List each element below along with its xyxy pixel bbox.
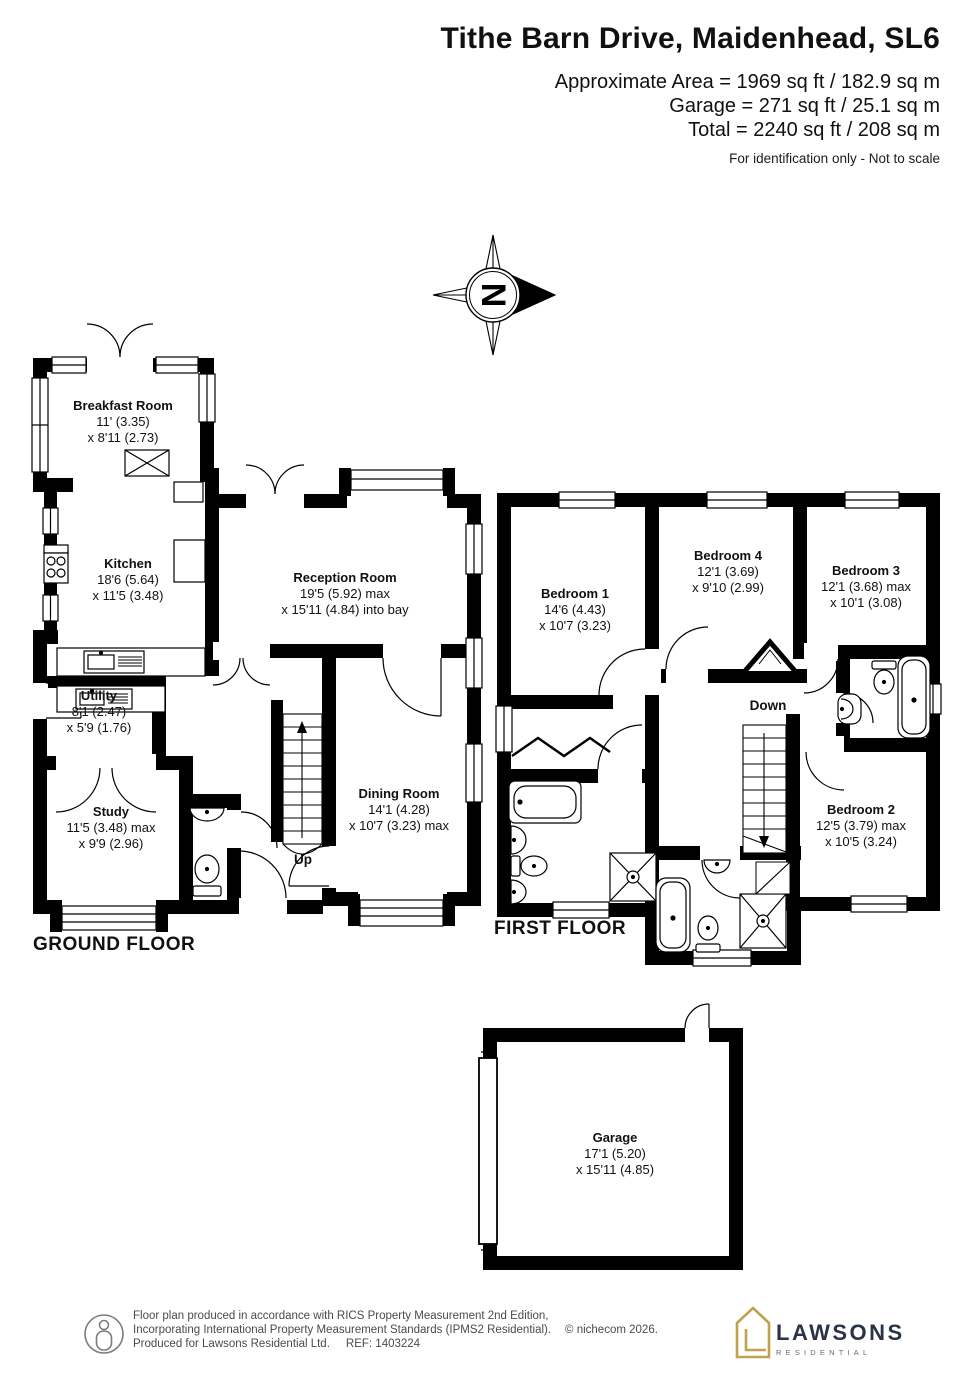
lawsons-logo: LAWSONS RESIDENTIAL xyxy=(776,1322,905,1357)
room-name: Garage xyxy=(576,1130,654,1146)
room-dim2: x 10'5 (3.24) xyxy=(816,834,906,850)
wardrobe-icon xyxy=(512,738,610,756)
room-label-kitchen: Kitchen 18'6 (5.64) x 11'5 (3.48) xyxy=(93,556,164,604)
floorplan-canvas: N xyxy=(0,0,980,1386)
room-name: Bedroom 3 xyxy=(821,563,911,579)
room-dim1: 14'1 (4.28) xyxy=(349,802,449,818)
lawsons-house-icon xyxy=(737,1308,769,1357)
family-bath-icon xyxy=(509,781,581,823)
room-dim1: 19'5 (5.92) max xyxy=(281,586,408,602)
wc-basin-icon xyxy=(190,808,224,821)
reception-bay-window xyxy=(339,468,455,496)
ensuite2-bath-icon xyxy=(656,878,690,952)
ensuite-basin-icon xyxy=(838,694,861,724)
room-name: Breakfast Room xyxy=(73,398,173,414)
room-dim2: x 9'9 (2.96) xyxy=(67,836,156,852)
room-dim2: x 15'11 (4.85) xyxy=(576,1162,654,1178)
first-floor-label: FIRST FLOOR xyxy=(494,918,626,940)
ensuite-toilet-icon xyxy=(872,661,896,694)
room-dim2: x 11'5 (3.48) xyxy=(93,588,164,604)
footer-line3: Produced for Lawsons Residential Ltd. xyxy=(133,1338,330,1350)
room-name: Bedroom 4 xyxy=(692,548,764,564)
page-title: Tithe Barn Drive, Maidenhead, SL6 xyxy=(440,22,940,56)
room-label-study: Study 11'5 (3.48) max x 9'9 (2.96) xyxy=(67,804,156,852)
room-label-bedroom-3: Bedroom 3 12'1 (3.68) max x 10'1 (3.08) xyxy=(821,563,911,611)
room-dim2: x 15'11 (4.84) into bay xyxy=(281,602,408,618)
room-dim1: 18'6 (5.64) xyxy=(93,572,164,588)
stairs-down xyxy=(743,725,786,853)
room-label-utility: Utility 8'1 (2.47) x 5'9 (1.76) xyxy=(67,688,132,736)
room-label-bedroom-4: Bedroom 4 12'1 (3.69) x 9'10 (2.99) xyxy=(692,548,764,596)
ensuite2-basin-icon xyxy=(704,860,730,873)
room-label-dining-room: Dining Room 14'1 (4.28) x 10'7 (3.23) ma… xyxy=(349,786,449,834)
wc-toilet-icon xyxy=(193,855,221,896)
roof-lantern-icon xyxy=(125,450,169,476)
footer-line2: Incorporating International Property Mea… xyxy=(133,1324,551,1336)
room-dim2: x 10'1 (3.08) xyxy=(821,595,911,611)
approximate-area: Approximate Area = 1969 sq ft / 182.9 sq… xyxy=(440,70,940,94)
footer-disclaimer: Floor plan produced in accordance with R… xyxy=(133,1309,658,1351)
room-dim2: x 9'10 (2.99) xyxy=(692,580,764,596)
compass-north-letter: N xyxy=(474,283,512,308)
family-basin2-icon xyxy=(511,880,526,904)
ensuite2-toilet-icon xyxy=(696,916,720,952)
copyright: © nichecom 2026. xyxy=(565,1324,658,1336)
room-name: Dining Room xyxy=(349,786,449,802)
room-dim2: x 8'11 (2.73) xyxy=(73,430,173,446)
brand-name: LAWSONS xyxy=(776,1322,905,1344)
compass-rose-icon: N xyxy=(433,235,555,355)
footer-line1: Floor plan produced in accordance with R… xyxy=(133,1309,658,1323)
floorplan-page: N xyxy=(0,0,980,1386)
room-dim1: 12'5 (3.79) max xyxy=(816,818,906,834)
room-name: Kitchen xyxy=(93,556,164,572)
airing-cupboard xyxy=(756,862,790,894)
room-dim2: x 5'9 (1.76) xyxy=(67,720,132,736)
ground-floor-label: GROUND FLOOR xyxy=(33,934,195,956)
brand-tagline: RESIDENTIAL xyxy=(776,1348,905,1357)
family-shower-icon xyxy=(610,853,656,901)
ensuite2-shower-icon xyxy=(740,894,786,948)
total-area: Total = 2240 sq ft / 208 sq m xyxy=(440,118,940,142)
room-name: Bedroom 1 xyxy=(539,586,611,602)
room-name: Study xyxy=(67,804,156,820)
room-label-bedroom-1: Bedroom 1 14'6 (4.43) x 10'7 (3.23) xyxy=(539,586,611,634)
stairs-up xyxy=(283,714,322,854)
garage-door xyxy=(479,1052,497,1250)
room-dim1: 17'1 (5.20) xyxy=(576,1146,654,1162)
room-name: Bedroom 2 xyxy=(816,802,906,818)
garage-side-door xyxy=(685,1004,709,1028)
footer-line3-row: Produced for Lawsons Residential Ltd.REF… xyxy=(133,1337,658,1351)
room-dim1: 11' (3.35) xyxy=(73,414,173,430)
kitchen-counter xyxy=(174,482,205,582)
bedroom4-chevron-closet xyxy=(745,642,795,671)
person-icon xyxy=(85,1315,123,1353)
footer-line2-row: Incorporating International Property Mea… xyxy=(133,1323,658,1337)
stairs-up-label: Up xyxy=(294,852,312,867)
room-label-bedroom-2: Bedroom 2 12'5 (3.79) max x 10'5 (3.24) xyxy=(816,802,906,850)
room-dim2: x 10'7 (3.23) xyxy=(539,618,611,634)
footer-ref: REF: 1403224 xyxy=(346,1338,420,1350)
room-dim1: 11'5 (3.48) max xyxy=(67,820,156,836)
room-label-breakfast-room: Breakfast Room 11' (3.35) x 8'11 (2.73) xyxy=(73,398,173,446)
ensuite-bath-icon xyxy=(898,656,930,738)
room-label-garage: Garage 17'1 (5.20) x 15'11 (4.85) xyxy=(576,1130,654,1178)
room-label-reception-room: Reception Room 19'5 (5.92) max x 15'11 (… xyxy=(281,570,408,618)
room-dim1: 12'1 (3.69) xyxy=(692,564,764,580)
room-dim1: 8'1 (2.47) xyxy=(67,704,132,720)
family-basin1-icon xyxy=(511,826,526,854)
scale-disclaimer: For identification only - Not to scale xyxy=(440,151,940,166)
kitchen-sink-icon xyxy=(57,648,205,676)
stairs-down-label: Down xyxy=(750,698,787,713)
header: Tithe Barn Drive, Maidenhead, SL6 Approx… xyxy=(440,22,940,166)
room-dim1: 14'6 (4.43) xyxy=(539,602,611,618)
room-name: Reception Room xyxy=(281,570,408,586)
room-name: Utility xyxy=(67,688,132,704)
family-toilet-icon xyxy=(511,856,547,876)
room-dim2: x 10'7 (3.23) max xyxy=(349,818,449,834)
garage-area: Garage = 271 sq ft / 25.1 sq m xyxy=(440,94,940,118)
room-dim1: 12'1 (3.68) max xyxy=(821,579,911,595)
hob-icon xyxy=(44,545,68,583)
